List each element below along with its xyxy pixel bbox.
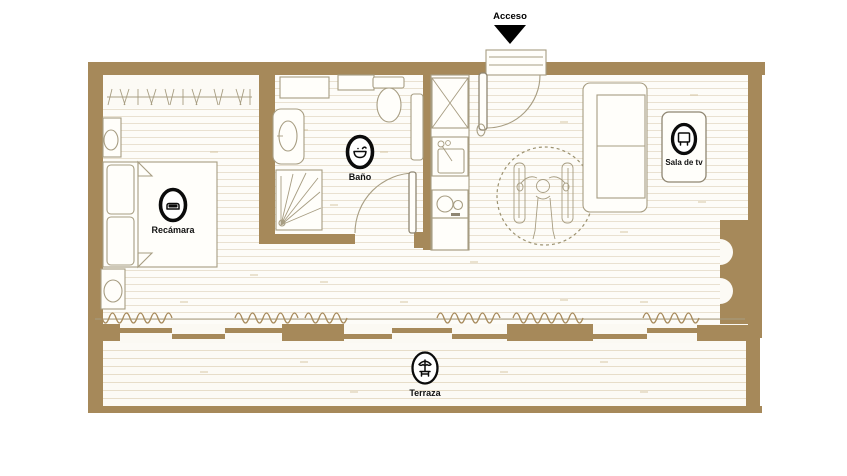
tv-text: Sala de tv [665,158,702,168]
room-label-bedroom: Recámara [140,186,206,235]
vanity-sink [273,109,304,164]
column-rounds [720,239,733,304]
room-label-tv: Sala de tv [657,121,711,168]
entrance-text: Acceso [493,11,527,22]
toilet [373,77,404,122]
tv-icon [669,121,699,157]
bedroom-text: Recámara [151,225,194,235]
nightstand-bottom [101,269,125,309]
kitchen-counter [431,75,469,250]
wheelchair-user [497,147,593,245]
entry-arrow-icon [494,25,526,44]
floor-plan: Acceso Recámara Baño Sala de tv [0,0,847,476]
sofa [583,83,647,212]
bed-icon [157,186,189,224]
terrace-text: Terraza [409,388,440,398]
shower [276,170,322,230]
furniture-layer [0,0,847,476]
bath-side-cabinet [411,94,423,160]
toilet-shelf [338,75,374,90]
bathroom-text: Baño [349,172,372,182]
room-label-bathroom: Baño [327,133,393,182]
parasol-table-icon [409,349,441,387]
entry-threshold [486,50,546,75]
washbasin-icon [344,133,376,171]
washer-cabinet [280,77,329,98]
entrance-label: Acceso [478,11,542,44]
closet-hanger-rod [107,89,252,105]
entry-door [477,73,540,136]
room-label-terrace: Terraza [392,349,458,398]
curtains [95,313,745,323]
nightstand-top [103,118,121,157]
